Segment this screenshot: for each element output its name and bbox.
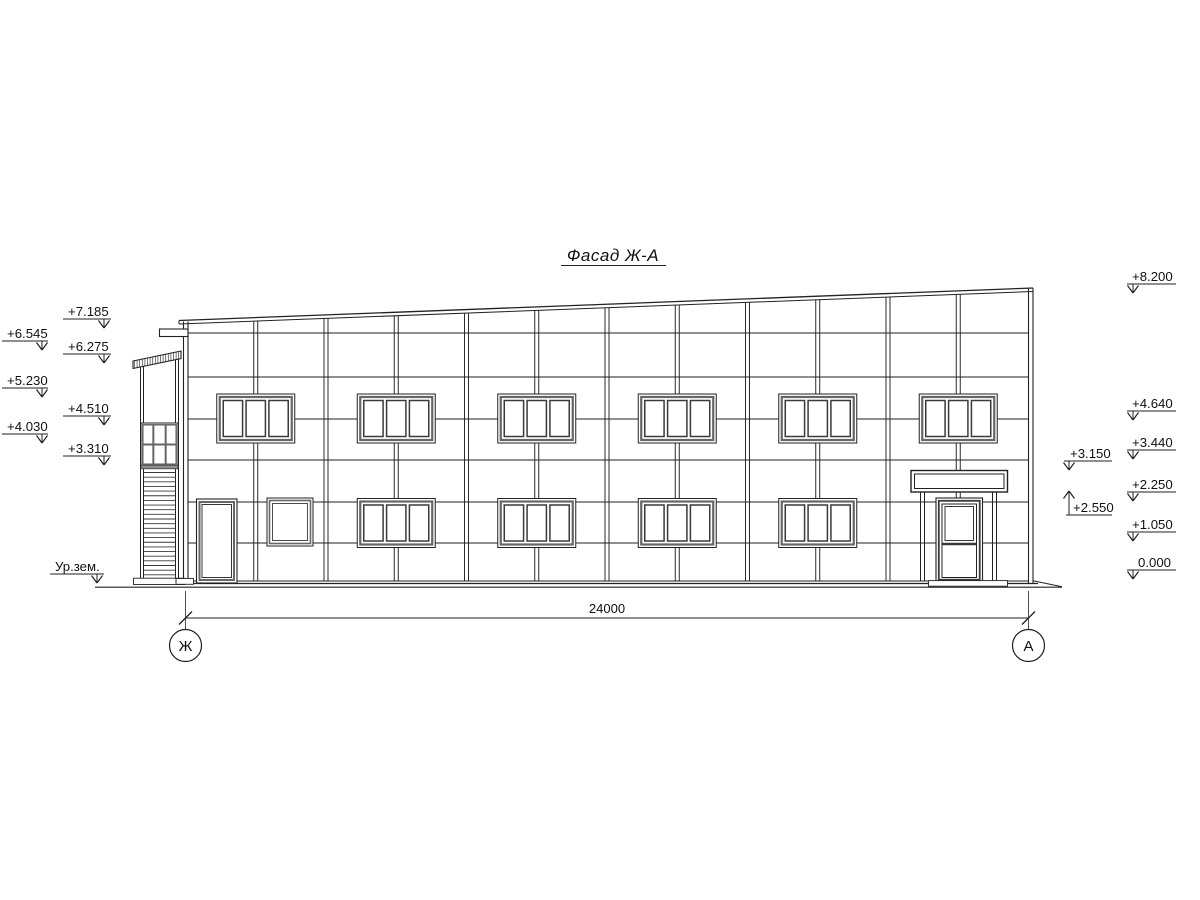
level-arrow: [104, 418, 110, 426]
level-arrow: [1128, 494, 1134, 502]
level-arrow: [1128, 413, 1134, 421]
elevation-mark-label: +6.545: [7, 326, 48, 341]
elevation-mark-label: Ур.зем.: [55, 559, 100, 574]
window-pane: [668, 401, 687, 437]
window-pane: [645, 505, 664, 541]
window-pane: [409, 401, 428, 437]
elevation-mark-label: +4.030: [7, 419, 48, 434]
window-pane: [550, 505, 569, 541]
level-arrow: [37, 436, 43, 444]
elevation-mark: +3.440: [1127, 435, 1176, 459]
elevation-mark-label: +8.200: [1132, 269, 1173, 284]
window-pane: [504, 401, 523, 437]
elevation-mark: +1.050: [1127, 517, 1176, 541]
level-arrow: [1133, 286, 1139, 294]
elevation-mark-label: +7.185: [68, 304, 109, 319]
drawing-title: Фасад Ж-А: [567, 246, 659, 265]
elevation-mark: +2.250: [1127, 477, 1176, 501]
level-arrow: [104, 458, 110, 466]
lower-window: [638, 499, 716, 548]
window-pane: [831, 505, 850, 541]
level-arrow: [1069, 463, 1075, 471]
door-leaf: [202, 505, 232, 578]
elevation-mark-label: +4.510: [68, 401, 109, 416]
level-arrow: [97, 576, 103, 584]
elevation-mark-label: +2.250: [1132, 477, 1173, 492]
wall-footing: [176, 579, 194, 585]
window-pane: [831, 401, 850, 437]
elevation-mark: +7.185: [63, 304, 111, 328]
level-arrow: [42, 343, 48, 351]
elevation-mark-label: +6.275: [68, 339, 109, 354]
elevation-mark: Ур.зем.: [50, 559, 104, 583]
elevation-mark: +8.200: [1127, 269, 1176, 293]
elevation-mark-label: +1.050: [1132, 517, 1173, 532]
upper-window: [638, 394, 716, 443]
dimension-value: 24000: [589, 601, 625, 616]
elevation-mark: 0.000: [1127, 555, 1176, 579]
level-arrow: [92, 576, 98, 584]
level-arrow: [104, 356, 110, 364]
parapet-line: [179, 288, 1033, 321]
elevation-mark: +6.545: [2, 326, 48, 350]
building-geometry: [95, 288, 1062, 587]
level-arrow: [99, 356, 105, 364]
level-arrow: [99, 458, 105, 466]
level-arrow: [1128, 452, 1134, 460]
small-square-window: [267, 498, 313, 546]
entrance-door: [936, 498, 983, 583]
upper-window: [498, 394, 576, 443]
window-pane: [926, 401, 945, 437]
upper-window: [357, 394, 435, 443]
level-arrow: [1133, 413, 1139, 421]
window-pane: [527, 505, 546, 541]
level-arrow: [1128, 286, 1134, 294]
window-pane: [808, 401, 827, 437]
level-arrow: [1128, 534, 1134, 542]
elevation-mark: +5.230: [2, 373, 48, 397]
window-pane: [223, 401, 242, 437]
elevation-mark-label: +3.150: [1070, 446, 1111, 461]
window-pane: [246, 401, 265, 437]
elevation-mark: +4.510: [63, 401, 111, 425]
window-pane: [269, 401, 288, 437]
lower-window: [357, 499, 435, 548]
window-pane: [645, 401, 664, 437]
level-arrow: [99, 321, 105, 329]
drawing-canvas: Фасад Ж-А 24000 Ж А +6.545+5.230+4.030Ур…: [0, 0, 1200, 900]
level-arrow: [1133, 572, 1139, 580]
elevation-mark-label: +3.440: [1132, 435, 1173, 450]
window-pane: [785, 505, 804, 541]
stair-tower: [133, 351, 181, 579]
axis-bubble-left: Ж: [170, 630, 202, 662]
window-pane: [364, 505, 383, 541]
level-arrow: [1064, 491, 1070, 499]
window-pane: [949, 401, 968, 437]
window-pane: [668, 505, 687, 541]
tower-spandrel-band: [141, 465, 178, 469]
entrance-threshold: [929, 581, 1008, 587]
level-arrow: [1133, 494, 1139, 502]
elevation-mark: +3.310: [63, 441, 111, 465]
lower-window: [498, 499, 576, 548]
level-arrow: [1133, 534, 1139, 542]
elevation-mark: +4.640: [1127, 396, 1176, 420]
level-arrow: [104, 321, 110, 329]
window-pane: [273, 504, 308, 541]
elevation-mark: +2.550: [1064, 491, 1114, 515]
window-pane: [504, 505, 523, 541]
upper-window: [779, 394, 857, 443]
level-arrow: [42, 390, 48, 398]
window-pane: [971, 401, 990, 437]
upper-window: [217, 394, 295, 443]
parapet-line: [179, 292, 1033, 325]
level-arrow: [37, 390, 43, 398]
level-arrow: [1069, 491, 1075, 499]
axis-bubble-right: А: [1013, 630, 1045, 662]
roof-ledge: [160, 329, 189, 337]
window-pane: [690, 401, 709, 437]
door-glass-panel: [945, 507, 974, 541]
elevation-mark-label: +4.640: [1132, 396, 1173, 411]
entrance-canopy: [911, 471, 1008, 493]
elevation-mark: +3.150: [1064, 446, 1113, 470]
level-arrow: [1064, 463, 1070, 471]
window-pane: [808, 505, 827, 541]
window-pane: [387, 505, 406, 541]
elevation-mark: +6.275: [63, 339, 111, 363]
level-arrow: [42, 436, 48, 444]
axis-label: Ж: [179, 638, 193, 655]
facade-elevation-drawing: Фасад Ж-А 24000 Ж А +6.545+5.230+4.030Ур…: [0, 0, 1200, 900]
level-arrow: [1128, 572, 1134, 580]
elevation-mark-label: +2.550: [1073, 500, 1114, 515]
axis-label: А: [1023, 638, 1033, 655]
service-door: [197, 499, 238, 583]
level-arrow: [1133, 452, 1139, 460]
upper-window: [919, 394, 997, 443]
lower-window: [779, 499, 857, 548]
elevation-mark: +4.030: [2, 419, 48, 443]
window-pane: [364, 401, 383, 437]
elevation-mark-label: 0.000: [1138, 555, 1171, 570]
window-pane: [785, 401, 804, 437]
window-pane: [550, 401, 569, 437]
elevation-mark-label: +3.310: [68, 441, 109, 456]
level-arrow: [37, 343, 43, 351]
window-pane: [387, 401, 406, 437]
level-arrow: [99, 418, 105, 426]
elevation-mark-label: +5.230: [7, 373, 48, 388]
window-pane: [409, 505, 428, 541]
window-pane: [690, 505, 709, 541]
window-pane: [527, 401, 546, 437]
